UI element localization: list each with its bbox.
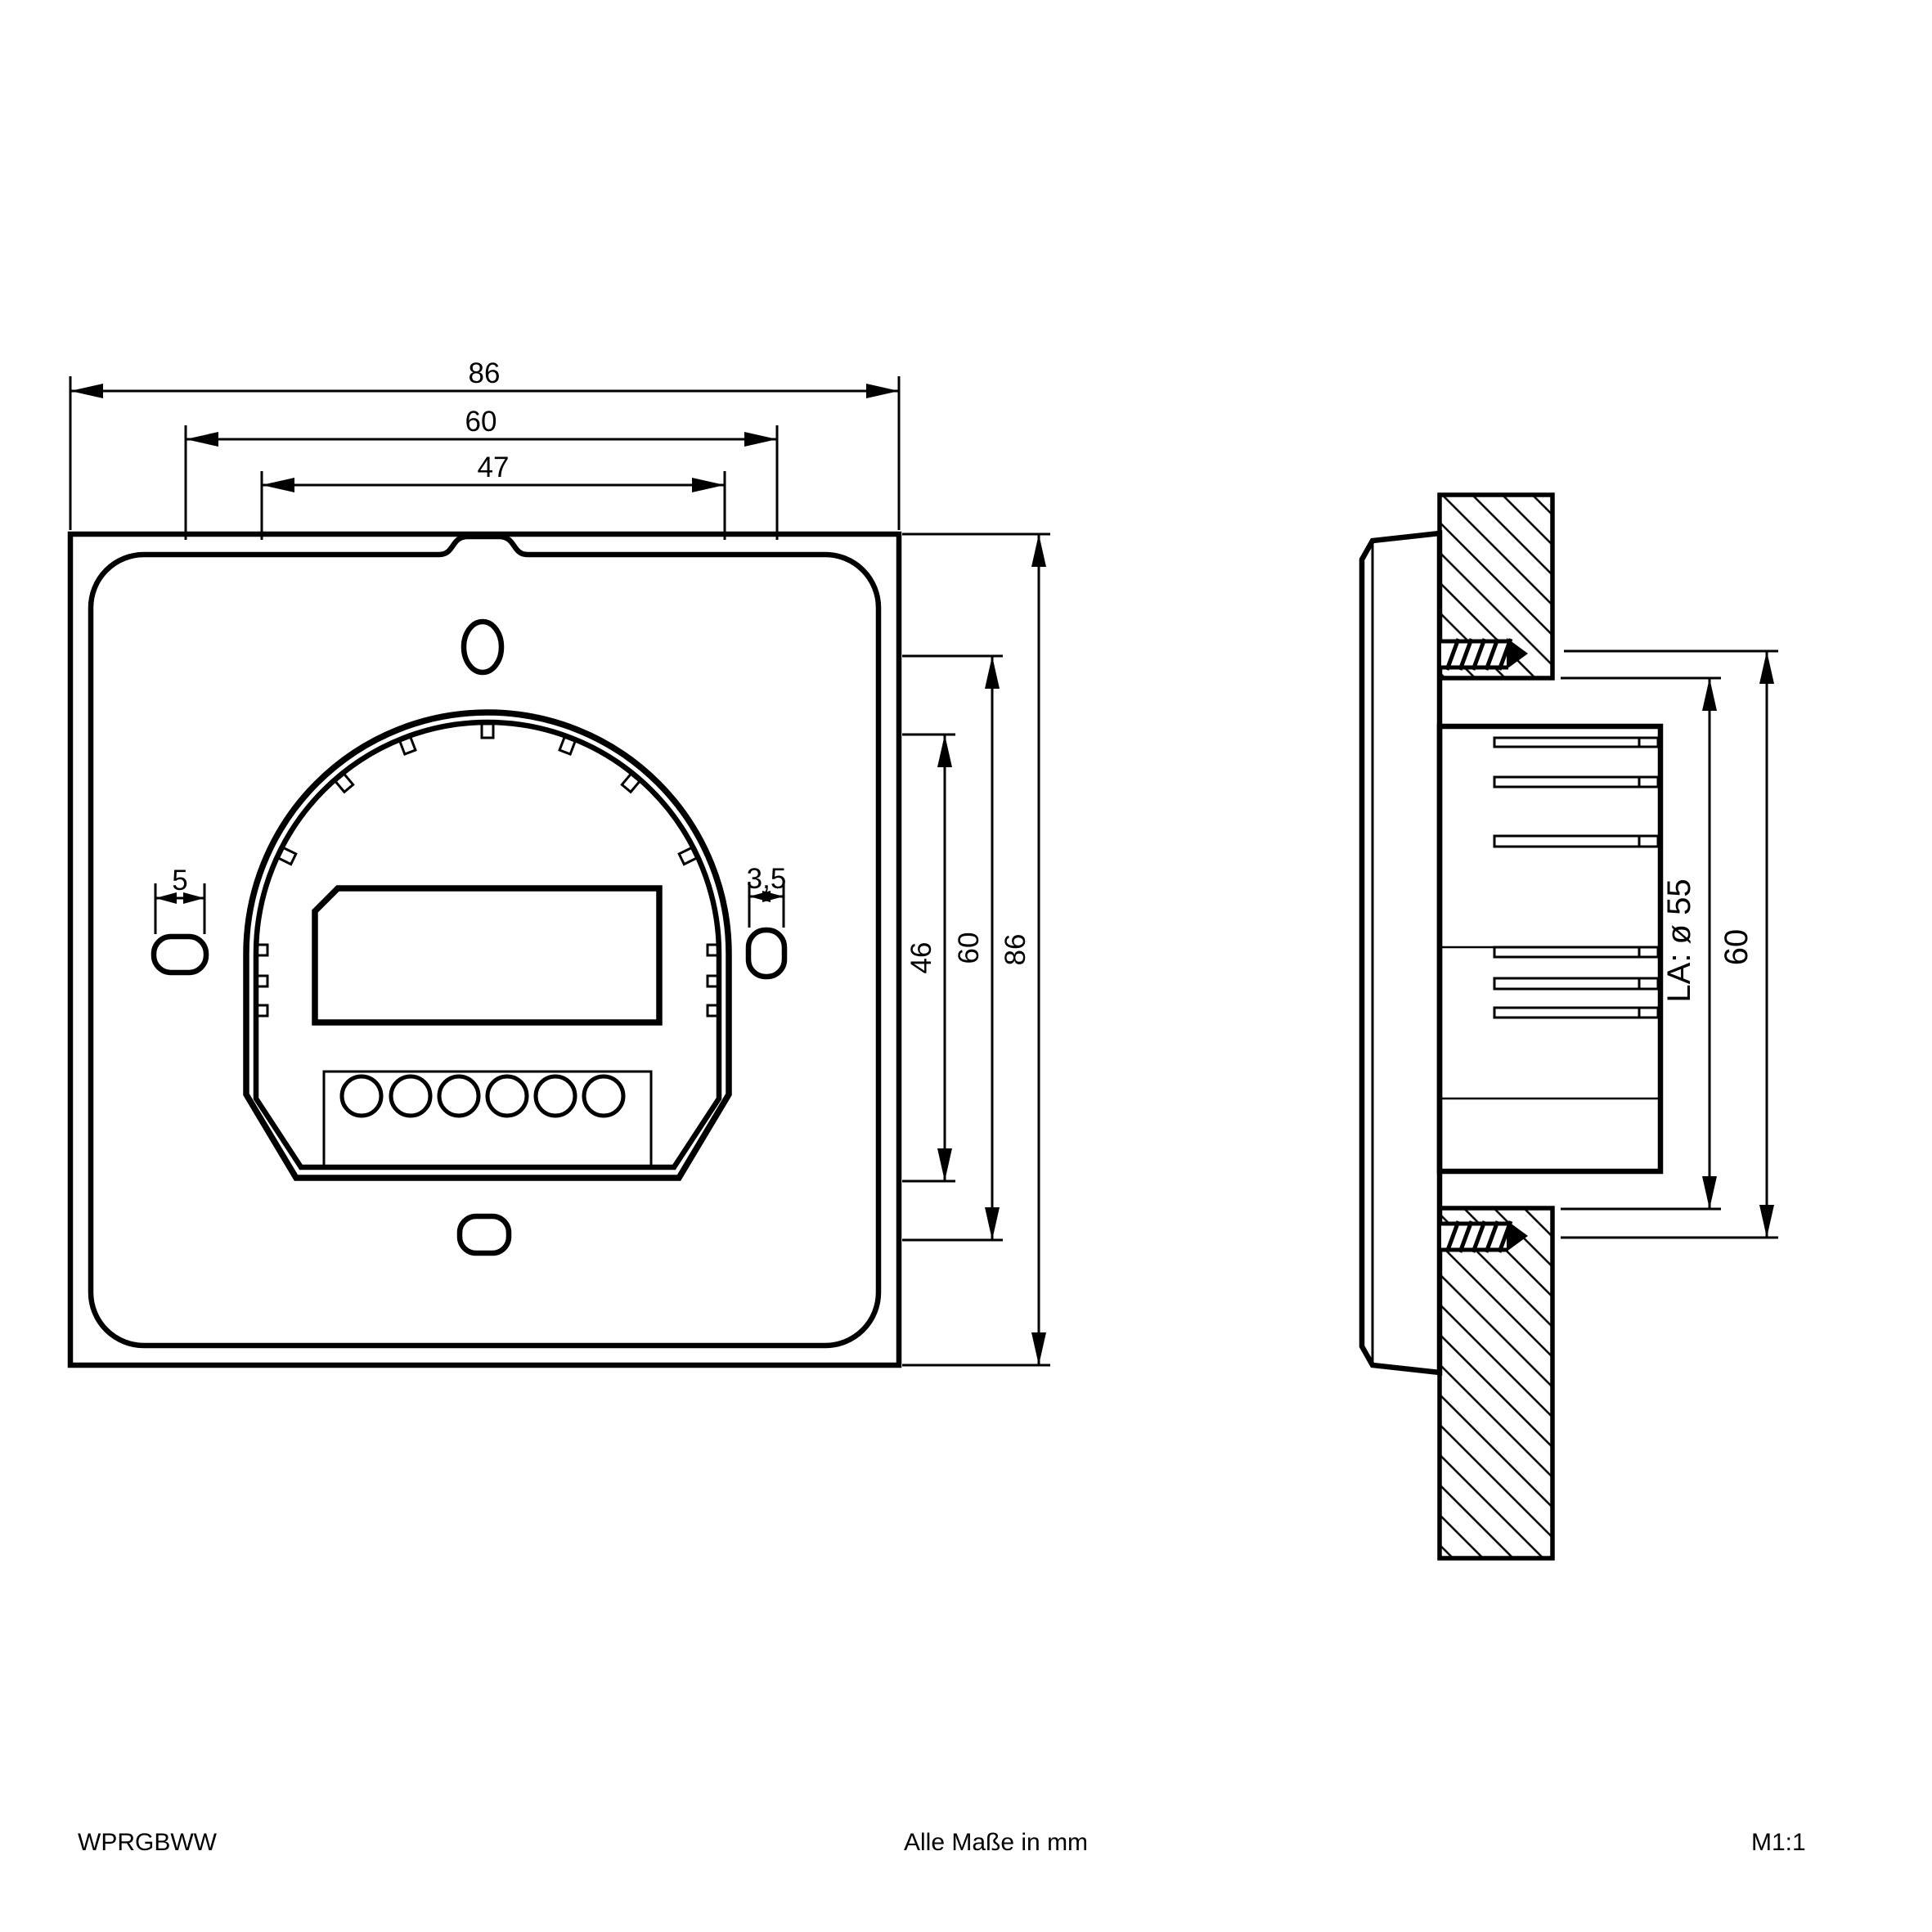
dim-top-86: 86 <box>70 357 899 530</box>
footer-scale: M1:1 <box>1751 1829 1806 1856</box>
terminal-circles <box>342 1076 623 1116</box>
terminal-circle <box>487 1076 527 1116</box>
dim-label-right-86: 86 <box>1000 934 1031 966</box>
bottom-screw-slot <box>460 1216 509 1253</box>
front-inner-plate <box>91 537 878 1346</box>
terminal-circle <box>391 1076 430 1116</box>
dim-label-top-60: 60 <box>465 406 497 438</box>
cooling-fin <box>1494 978 1658 989</box>
dim-top-47: 47 <box>262 452 725 540</box>
dial-tick <box>400 737 416 754</box>
side-view: LA: ø 55 60 <box>1362 495 1778 1558</box>
dim-label-slot-5: 5 <box>172 865 187 896</box>
dim-slot-left-5: 5 <box>155 865 204 934</box>
footer: WPRGBWW Alle Maße in mm M1:1 <box>78 1829 1806 1856</box>
top-screw-slot <box>464 622 501 672</box>
cooling-fin <box>1494 836 1658 847</box>
front-view: 86 60 47 5 <box>70 357 1050 1365</box>
footer-units-note: Alle Maße in mm <box>904 1829 1088 1856</box>
terminal-block <box>324 1072 651 1167</box>
dim-side-la55: LA: ø 55 <box>1561 678 1721 1209</box>
cooling-fin <box>1494 947 1658 957</box>
wall-section-lower <box>1440 1208 1552 1558</box>
dial-tick <box>559 737 575 754</box>
dim-right-46: 46 <box>902 735 955 1181</box>
dim-slot-right-3-5: 3,5 <box>747 863 787 928</box>
footer-product-code: WPRGBWW <box>78 1829 218 1856</box>
terminal-circle <box>536 1076 575 1116</box>
dial-side-tabs <box>256 945 719 1016</box>
dial-tick <box>482 724 493 738</box>
dial-tick <box>679 848 696 865</box>
cooling-fin <box>1494 1008 1658 1018</box>
dim-label-top-86: 86 <box>469 357 501 389</box>
dial-tick <box>278 848 295 865</box>
cooling-fin <box>1494 738 1658 747</box>
drawing-svg: 86 60 47 5 <box>0 0 1932 1932</box>
dim-label-slot-3-5: 3,5 <box>747 863 787 895</box>
dim-label-side-60: 60 <box>1719 929 1755 966</box>
terminal-circle <box>342 1076 381 1116</box>
left-fixing-hole <box>154 937 206 973</box>
technical-drawing-page: 86 60 47 5 <box>0 0 1932 1932</box>
body-fins <box>1494 738 1658 1018</box>
right-fixing-hole <box>748 930 784 977</box>
cooling-fin <box>1494 777 1658 787</box>
terminal-circle <box>584 1076 623 1116</box>
terminal-circle <box>439 1076 479 1116</box>
front-outer-frame <box>70 534 899 1365</box>
dim-label-right-60: 60 <box>953 932 985 964</box>
dim-label-right-46: 46 <box>905 942 937 974</box>
dim-label-top-47: 47 <box>478 452 510 483</box>
dim-label-la55: LA: ø 55 <box>1661 878 1697 1002</box>
device-body <box>1440 726 1660 1171</box>
lcd-display-window <box>315 888 659 1022</box>
dial-tick-marks <box>278 724 696 865</box>
